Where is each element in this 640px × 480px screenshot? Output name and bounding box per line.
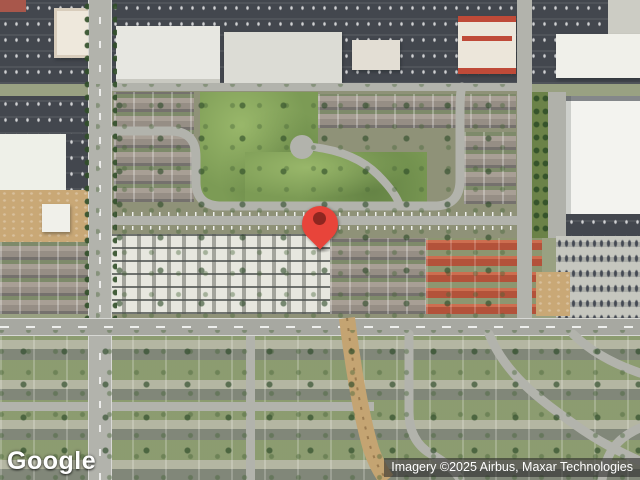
building-warehouse [566,96,640,214]
road-vertical-east [517,0,532,330]
building-white-west [0,134,66,190]
region-condos-mid-south [330,238,426,314]
road-vertical-west [88,0,112,480]
road-residential-horizontal [0,402,374,411]
marker-pin[interactable] [302,206,338,242]
building-red-striped-roof-ridge [462,36,512,41]
road-warehouse-access [548,92,566,238]
region-condos-nw [114,92,194,202]
region-condos-ne [464,132,516,204]
park-green-east [245,152,427,204]
satellite-map[interactable]: Google Imagery ©2025 Airbus, Maxar Techn… [0,0,640,480]
building-red-roof-strip [0,0,26,12]
road-residential-vertical [246,334,255,480]
marker-pin-dot [313,212,326,225]
tree-row-boulevard-east [111,0,117,318]
region-mobile-home-park [96,234,330,314]
building-small-commercial [352,40,400,70]
parking-lot-west-upper [0,96,90,134]
tree-row-warehouse [532,92,548,238]
region-condos-north-row [318,94,516,128]
region-dirt-lot-east [536,272,570,316]
tree-row-boulevard-west [83,0,89,318]
attribution-text: Imagery ©2025 Airbus, Maxar Technologies [391,460,633,474]
building-white-upper-right [556,34,640,78]
attribution-bar: Imagery ©2025 Airbus, Maxar Technologies [384,458,640,477]
building-construction-west [42,204,70,232]
region-loading-dock [566,214,640,238]
region-condos-west [0,242,90,314]
building-industrial-center [224,32,342,88]
building-industrial-west [116,26,220,88]
google-logo[interactable]: Google [7,447,96,476]
road-main-horizontal [0,318,640,336]
road-complex-north [112,83,517,91]
building-red-striped-roof [458,16,516,74]
